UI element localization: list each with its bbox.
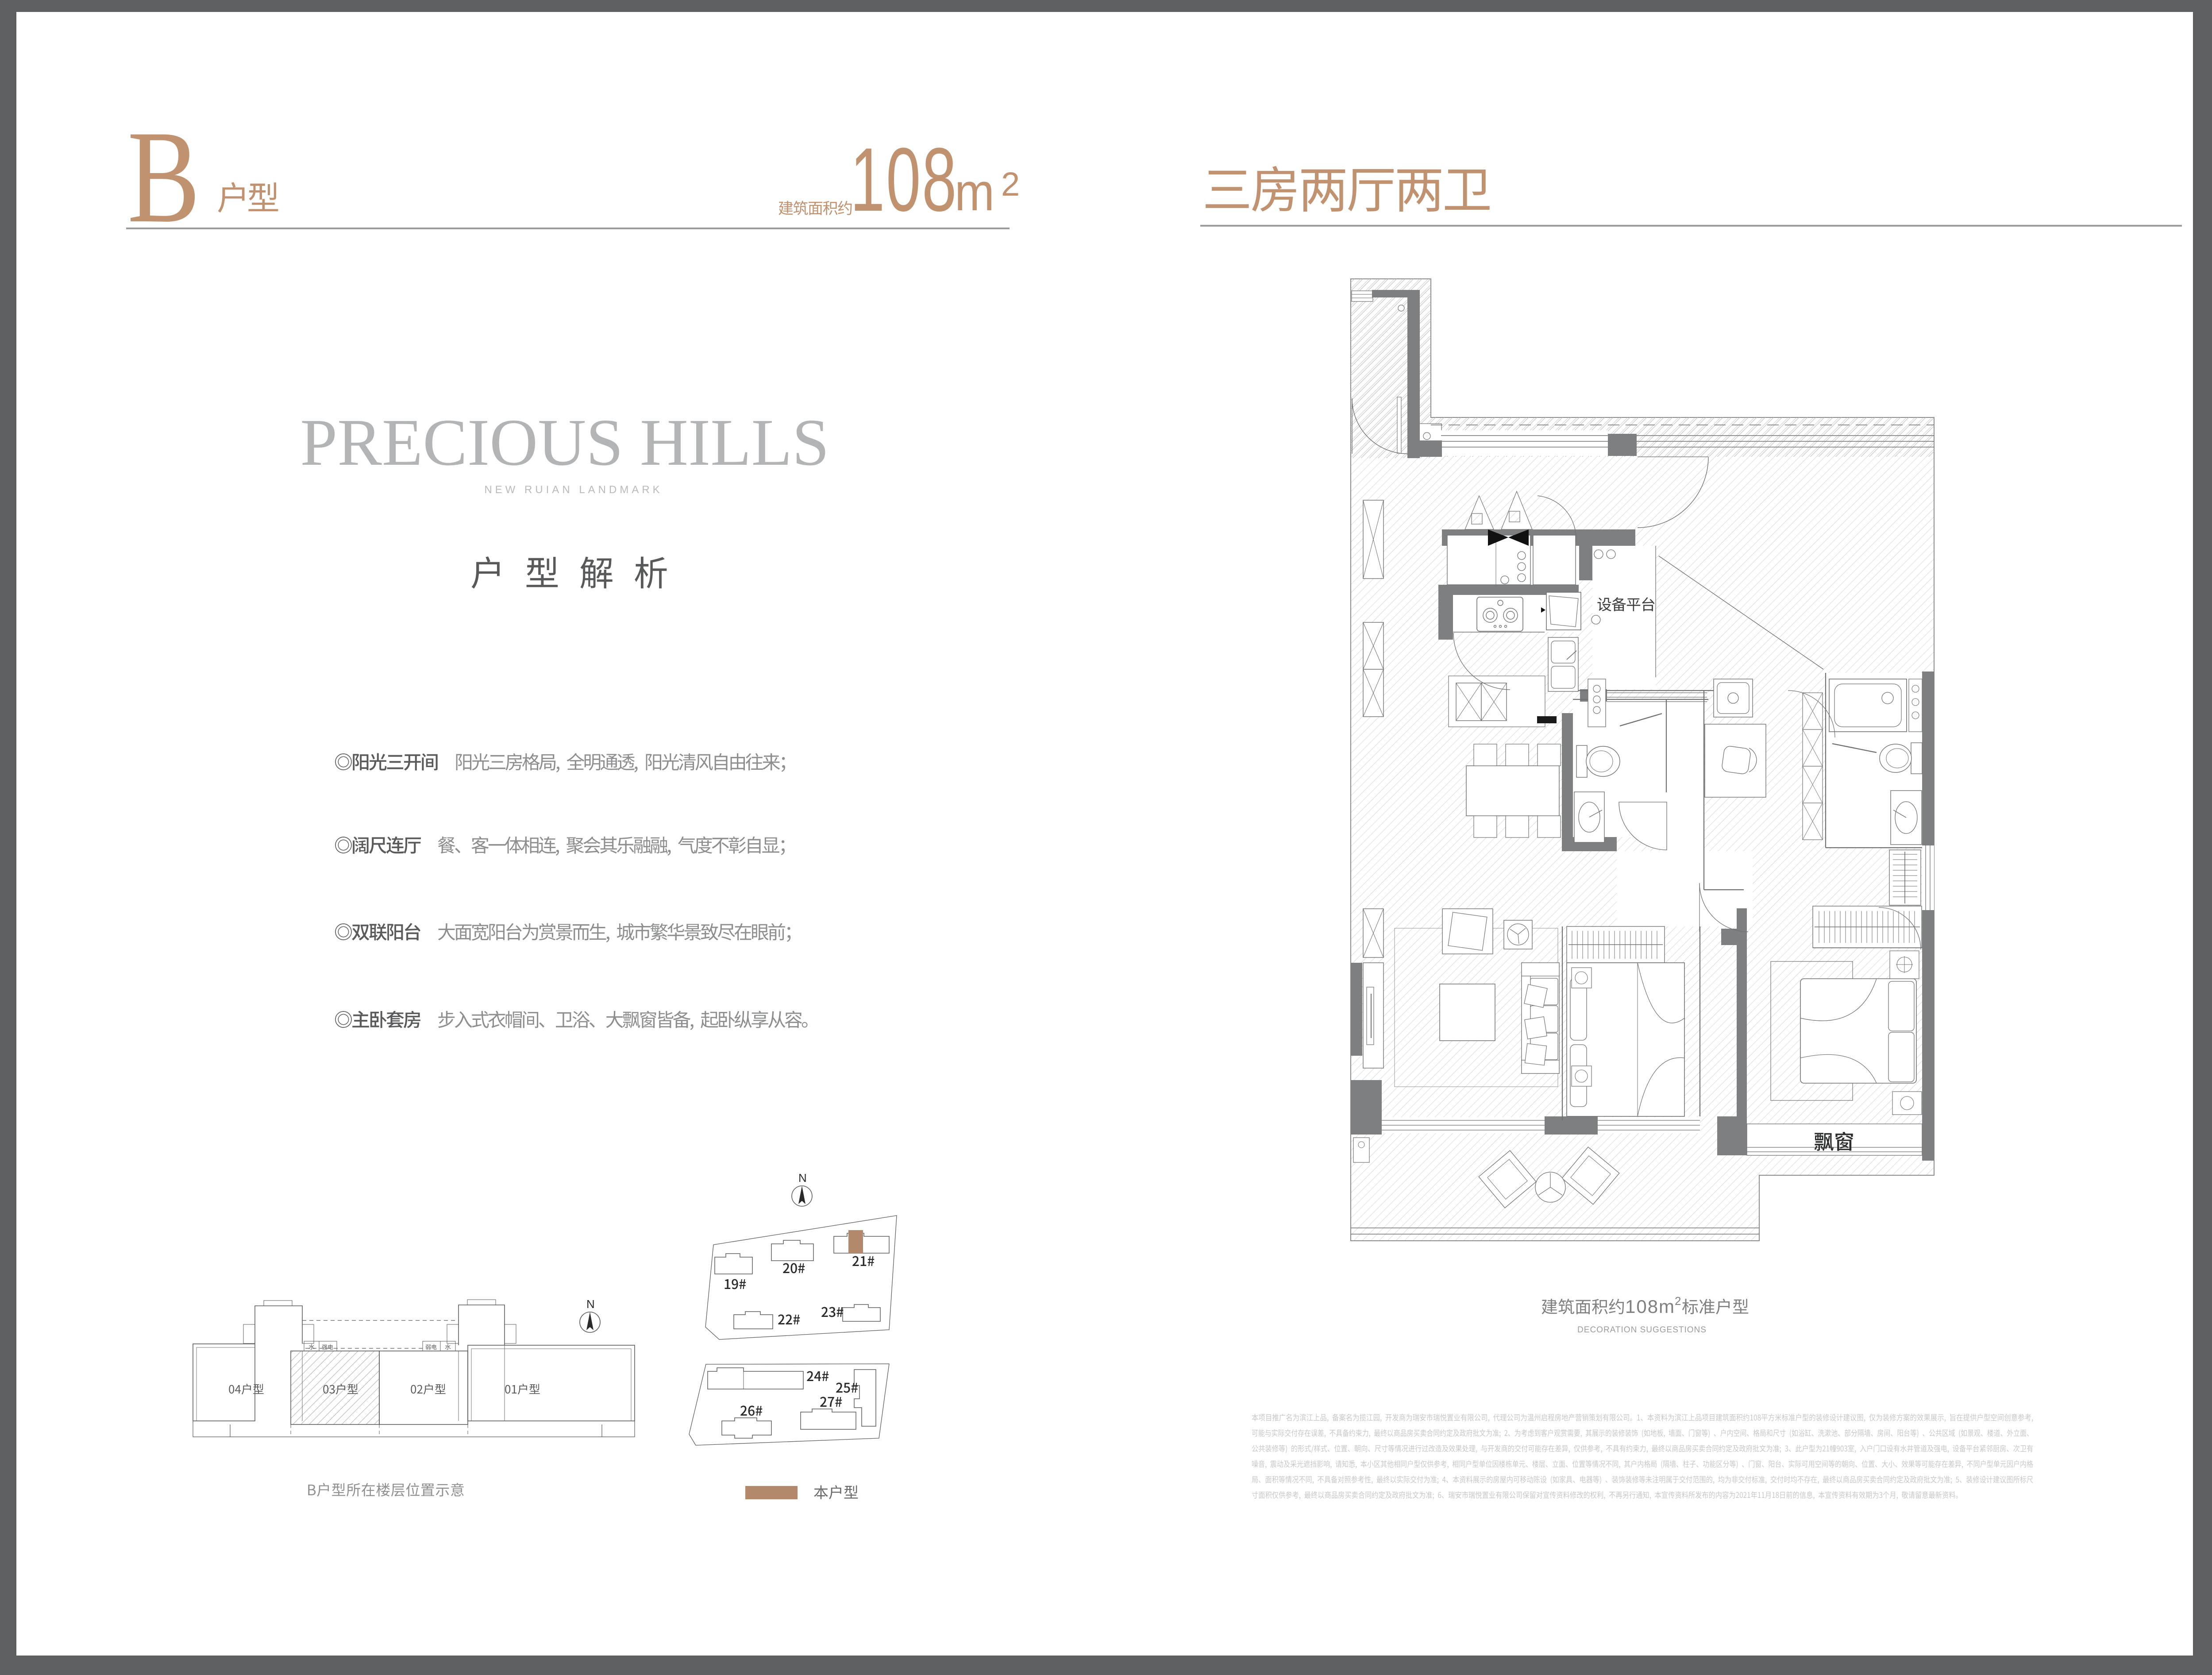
svg-text:m: m bbox=[1659, 1296, 1674, 1317]
svg-text:N: N bbox=[586, 1297, 595, 1311]
svg-text:2: 2 bbox=[1675, 1294, 1681, 1308]
svg-text:108: 108 bbox=[1625, 1296, 1659, 1317]
svg-text:N: N bbox=[798, 1171, 807, 1185]
